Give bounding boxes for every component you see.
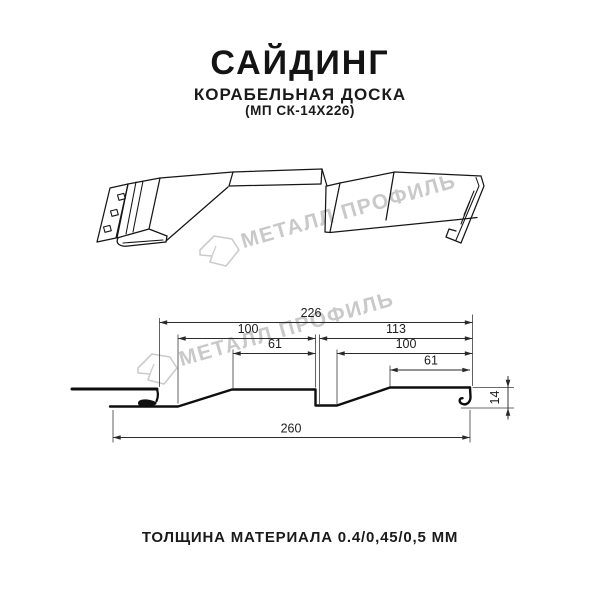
nail-hole: [111, 209, 119, 216]
profile-outline: [110, 388, 470, 407]
nail-hole: [118, 193, 126, 200]
product-card: МЕТАЛЛ ПРОФИЛЬ МЕТАЛЛ ПРОФИЛЬ САЙДИНГ КО…: [0, 0, 600, 600]
3d-profile-sketch: [97, 169, 484, 246]
dim-label-61-left: 61: [268, 337, 282, 351]
nail-hole: [104, 225, 112, 232]
dim-label-260: 260: [281, 422, 302, 436]
dim-label-100-left: 100: [238, 322, 259, 336]
nail-strip: [97, 184, 128, 242]
dim-label-113: 113: [386, 322, 406, 336]
dimension-labels: 226 100 113 61 100 61 260 14: [238, 306, 502, 436]
lock-fold: [117, 178, 160, 238]
dim-label-226: 226: [301, 306, 322, 320]
dim-label-14: 14: [488, 391, 502, 405]
extension-lines: [113, 315, 514, 443]
dim-label-100-right: 100: [396, 337, 417, 351]
dimension-lines: [113, 323, 508, 438]
technical-drawing-canvas: 226 100 113 61 100 61 260 14: [0, 0, 600, 600]
cross-section-profile: [72, 388, 471, 408]
dim-label-61-right: 61: [424, 354, 438, 368]
